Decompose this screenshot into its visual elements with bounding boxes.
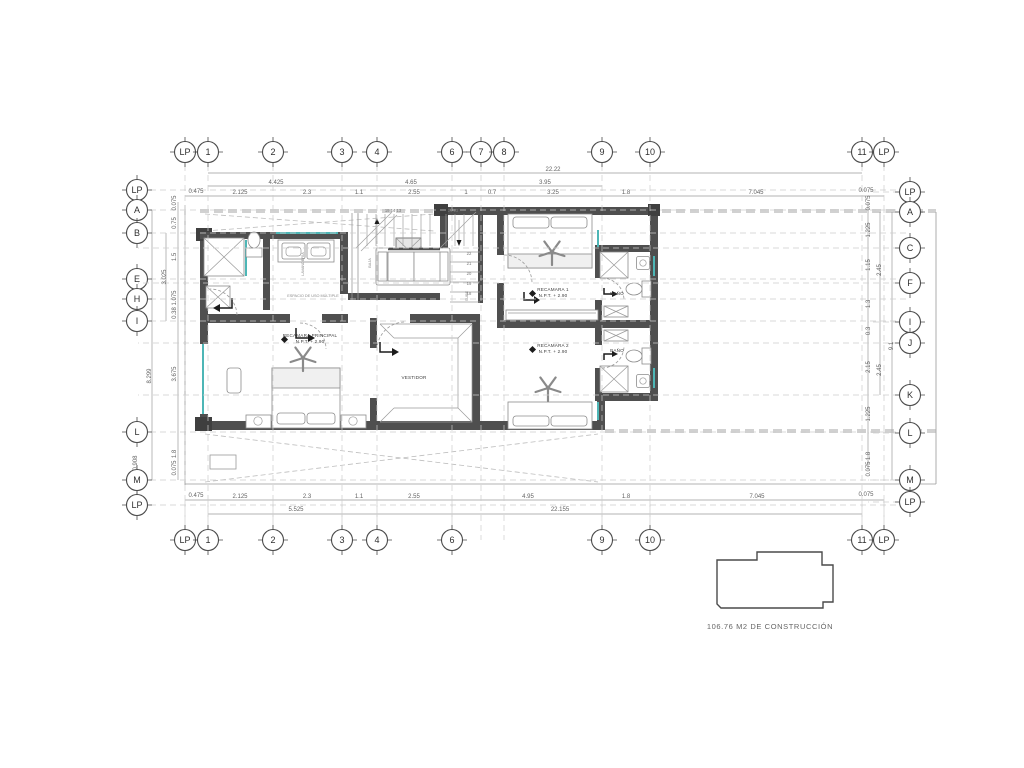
grid-bubble: L [868,418,925,448]
svg-text:9: 9 [599,147,604,157]
grid-bubbles-top: LP 1 2 3 4 [170,137,899,540]
grid-bubble: A [868,197,925,227]
svg-text:2.55: 2.55 [408,494,420,500]
svg-text:2.45: 2.45 [877,364,883,376]
svg-text:24 23: 24 23 [448,208,459,213]
svg-text:LP: LP [179,147,190,157]
svg-text:3: 3 [339,535,344,545]
master-bed [272,368,340,428]
grid-bubble: 9 [587,498,617,555]
svg-text:22: 22 [467,251,472,256]
svg-text:22.155: 22.155 [551,507,570,513]
grid-bubble: 1 [193,137,223,540]
svg-text:1.8: 1.8 [172,449,178,458]
svg-text:11: 11 [857,147,866,157]
svg-text:RECAMARA 1: RECAMARA 1 [537,287,569,292]
svg-text:3.25: 3.25 [547,190,559,196]
grid-bubble: 8 [489,137,519,540]
svg-text:LP: LP [131,500,142,510]
ceiling-fan-icon [291,348,316,372]
svg-text:L: L [907,428,912,438]
svg-text:0.3: 0.3 [866,326,872,335]
svg-text:2.3: 2.3 [303,190,312,196]
grid-bubble: LP [869,498,899,555]
svg-text:3: 3 [339,147,344,157]
svg-text:LP: LP [131,185,142,195]
svg-text:1.8: 1.8 [866,451,872,460]
grid-bubble: J [138,328,925,358]
grid-bubble: 10 [635,137,665,540]
svg-text:1.15: 1.15 [866,259,872,271]
svg-text:19: 19 [467,281,472,286]
svg-text:4.95: 4.95 [522,494,534,500]
svg-text:J: J [908,338,913,348]
svg-text:M: M [133,475,141,485]
bed-2 [508,402,592,429]
sink-icon [637,257,650,270]
svg-text:BAJA: BAJA [368,258,372,268]
terrace-brace-x [205,214,434,231]
svg-text:3.675: 3.675 [172,366,178,382]
svg-text:5.525: 5.525 [288,507,304,513]
svg-text:0.475: 0.475 [188,189,204,195]
svg-text:1.1: 1.1 [355,190,364,196]
grid-bubble: 7 [466,137,496,540]
svg-text:I: I [136,316,139,326]
grid-bubble: 4 [362,137,392,540]
svg-text:0.475: 0.475 [188,493,204,499]
grid-bubble: 11 [847,137,877,540]
svg-text:F: F [907,278,913,288]
svg-text:2.125: 2.125 [232,494,248,500]
dimensions-top: 22.224.4254.653.950.4752.1252.31.12.5510… [188,167,874,196]
svg-text:1.8: 1.8 [622,190,631,196]
grid-bubble: 1 [193,498,223,555]
svg-text:21: 21 [467,261,472,266]
sofa [376,248,450,285]
svg-text:2.55: 2.55 [408,190,420,196]
svg-text:0.908: 0.908 [133,455,139,471]
svg-text:BAÑO: BAÑO [610,347,624,353]
tiny-labels: ESPACIO DE USO MÚLTIPLE [287,293,339,298]
roof-brace-x [205,434,598,482]
svg-text:8.299: 8.299 [147,368,153,384]
toilet-icon [626,348,651,364]
svg-text:C: C [907,243,914,253]
svg-text:0.38: 0.38 [172,307,178,319]
svg-text:11: 11 [857,535,866,545]
svg-text:22.22: 22.22 [545,167,561,173]
svg-text:8: 8 [501,147,506,157]
svg-text:4.425: 4.425 [268,180,284,186]
svg-text:LP: LP [878,147,889,157]
svg-text:18: 18 [467,291,472,296]
svg-text:4: 4 [374,147,379,157]
grid-bubble: 11 [847,498,877,555]
svg-text:1.075: 1.075 [172,290,178,306]
bed-1 [508,214,592,268]
svg-text:N.P.T. + 2.90: N.P.T. + 2.90 [296,339,325,344]
chair [227,368,241,393]
sink-icon [637,375,650,388]
toilet-icon [626,281,651,297]
grid-bubble: LP [170,498,200,555]
svg-text:0.075: 0.075 [858,492,874,498]
svg-text:B: B [134,228,140,238]
svg-text:0.075: 0.075 [172,460,178,476]
grid-bubble: 6 [437,137,467,540]
svg-text:2.15: 2.15 [866,361,872,373]
svg-text:0.075: 0.075 [866,461,872,477]
svg-text:RECAMARA 2: RECAMARA 2 [537,343,569,348]
svg-text:7: 7 [478,147,483,157]
svg-text:L: L [134,427,139,437]
svg-text:0.075: 0.075 [858,188,874,194]
svg-text:4: 4 [374,535,379,545]
svg-text:19 14 13: 19 14 13 [385,208,402,213]
svg-text:2: 2 [270,147,275,157]
grid-bubble: H [122,284,907,314]
grid-bubble: LP [868,487,925,517]
svg-text:VESTIDOR: VESTIDOR [401,375,427,380]
grid-bubble: 3 [327,498,357,555]
grid-bubble: 2 [258,498,288,555]
svg-text:6: 6 [449,147,454,157]
svg-text:N.P.T. + 2.90: N.P.T. + 2.90 [539,349,568,354]
svg-text:20: 20 [467,271,472,276]
svg-text:E: E [134,274,140,284]
svg-text:ESPACIO DE USO MÚLTIPLE: ESPACIO DE USO MÚLTIPLE [287,293,339,298]
room-labels: RECAMARA PRINCIPALN.P.T. + 2.90RECAMARA … [283,287,624,380]
svg-text:1: 1 [205,535,210,545]
svg-text:3.025: 3.025 [162,269,168,285]
dimensions-bottom: 0.4752.1252.31.12.554.951.87.0450.0755.5… [188,492,874,513]
svg-text:0.075: 0.075 [172,195,178,211]
grid-bubble: M [122,465,907,495]
svg-text:1.8: 1.8 [622,494,631,500]
grid-bubble: 4 [362,498,392,555]
svg-text:3.95: 3.95 [539,180,551,186]
desk [506,310,598,320]
svg-text:M: M [906,475,914,485]
exterior-step [210,455,236,469]
svg-text:0.075: 0.075 [866,195,872,211]
svg-text:1: 1 [464,190,468,196]
svg-text:9: 9 [599,535,604,545]
floor-plan-page: LP 1 2 3 4 [0,0,1024,768]
svg-text:2: 2 [270,535,275,545]
key-plan: 106.76 M2 DE CONSTRUCCIÓN [707,552,833,631]
svg-text:10: 10 [645,535,655,545]
svg-text:2.45: 2.45 [877,264,883,276]
svg-text:LP: LP [904,187,915,197]
svg-text:LP: LP [179,535,190,545]
grid-bubble: 6 [437,498,467,555]
svg-text:K: K [907,390,913,400]
ceiling-fan-icon [536,378,561,402]
svg-text:A: A [907,207,913,217]
svg-text:LAVANDERÍA: LAVANDERÍA [301,252,305,276]
grid-bubble: LP [869,137,899,540]
grid-bubble: 10 [635,498,665,555]
grid-bubble: LP [868,177,925,207]
svg-text:1.225: 1.225 [866,222,872,238]
dimensions-right: 0.0751.2251.152.451.30.39.12.152.451.225… [866,195,895,477]
svg-text:BAÑO: BAÑO [610,290,624,296]
grid-bubble: M [868,465,925,495]
svg-text:1.5: 1.5 [172,252,178,261]
svg-text:4.65: 4.65 [405,180,417,186]
svg-text:0.7: 0.7 [488,190,497,196]
svg-text:1.3: 1.3 [866,299,872,308]
svg-text:RECAMARA PRINCIPAL: RECAMARA PRINCIPAL [283,333,338,338]
svg-text:LP: LP [904,497,915,507]
svg-text:2.3: 2.3 [303,494,312,500]
svg-text:N.P.T. + 2.90: N.P.T. + 2.90 [539,293,568,298]
svg-text:1.225: 1.225 [866,406,872,422]
svg-text:0.75: 0.75 [172,217,178,229]
closet [380,324,472,422]
svg-text:1: 1 [205,147,210,157]
svg-text:H: H [134,294,141,304]
svg-text:6: 6 [449,535,454,545]
grid-bubble: 3 [327,137,357,540]
svg-text:A: A [134,205,140,215]
area-caption: 106.76 M2 DE CONSTRUCCIÓN [707,622,833,631]
grid-bubble: I [868,307,925,337]
svg-text:7.045: 7.045 [749,494,765,500]
svg-text:2.125: 2.125 [232,190,248,196]
svg-text:7.045: 7.045 [748,190,764,196]
svg-text:LP: LP [878,535,889,545]
floor-plan-canvas: LP 1 2 3 4 [0,0,1024,768]
svg-text:1.1: 1.1 [355,494,364,500]
svg-text:I: I [909,317,912,327]
svg-text:9.1: 9.1 [889,341,895,350]
svg-text:10: 10 [645,147,655,157]
grid-bubbles-bottom: LP 1 2 3 4 [170,498,899,555]
